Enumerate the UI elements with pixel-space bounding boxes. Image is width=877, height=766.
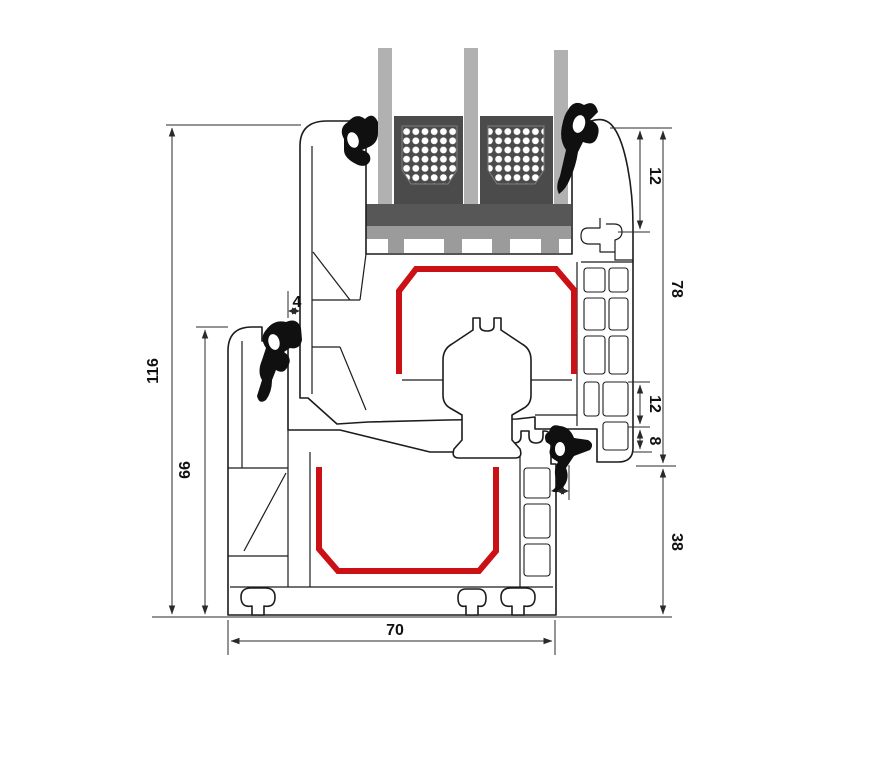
glass-pane <box>378 48 392 206</box>
glazing-bridge <box>366 226 581 253</box>
dim-78-label: 78 <box>668 280 685 298</box>
setting-block <box>364 204 571 226</box>
dim-12-mid: 12 <box>640 385 663 424</box>
dim-38: 38 <box>663 469 685 614</box>
dim-12-mid-label: 12 <box>646 395 663 413</box>
dim-12-top-label: 12 <box>646 167 663 185</box>
dim-66: 66 <box>177 330 205 614</box>
dim-8: 8 <box>640 430 663 449</box>
dim-78: 78 <box>663 131 685 463</box>
dim-116: 116 <box>145 128 172 614</box>
glazing-unit <box>364 48 581 253</box>
dim-70: 70 <box>231 622 552 641</box>
spacer-bar <box>394 116 463 205</box>
dim-4-top-label: 4 <box>293 294 302 311</box>
window-profile-section: 116 66 12 78 12 8 38 70 <box>0 0 877 766</box>
dim-12-top: 12 <box>640 131 663 229</box>
dim-66-label: 66 <box>177 461 194 479</box>
dim-38-label: 38 <box>668 533 685 551</box>
spacer-bar <box>480 116 553 205</box>
dim-70-label: 70 <box>386 622 404 639</box>
dim-116-label: 116 <box>145 358 162 384</box>
dim-4-mid-label: 4 <box>556 471 565 488</box>
dim-8-label: 8 <box>646 437 663 446</box>
cross-section-diagram: 116 66 12 78 12 8 38 70 <box>0 0 877 766</box>
glass-pane <box>464 48 478 206</box>
